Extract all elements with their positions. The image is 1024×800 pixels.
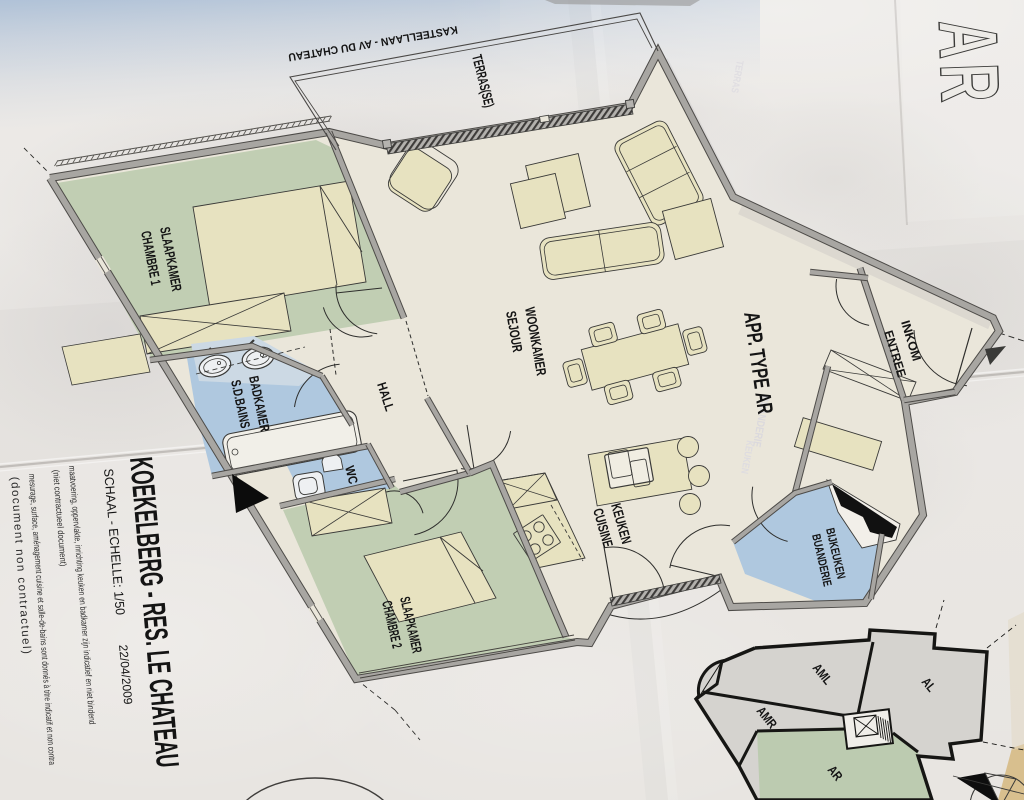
- svg-text:AR: AR: [921, 18, 1017, 108]
